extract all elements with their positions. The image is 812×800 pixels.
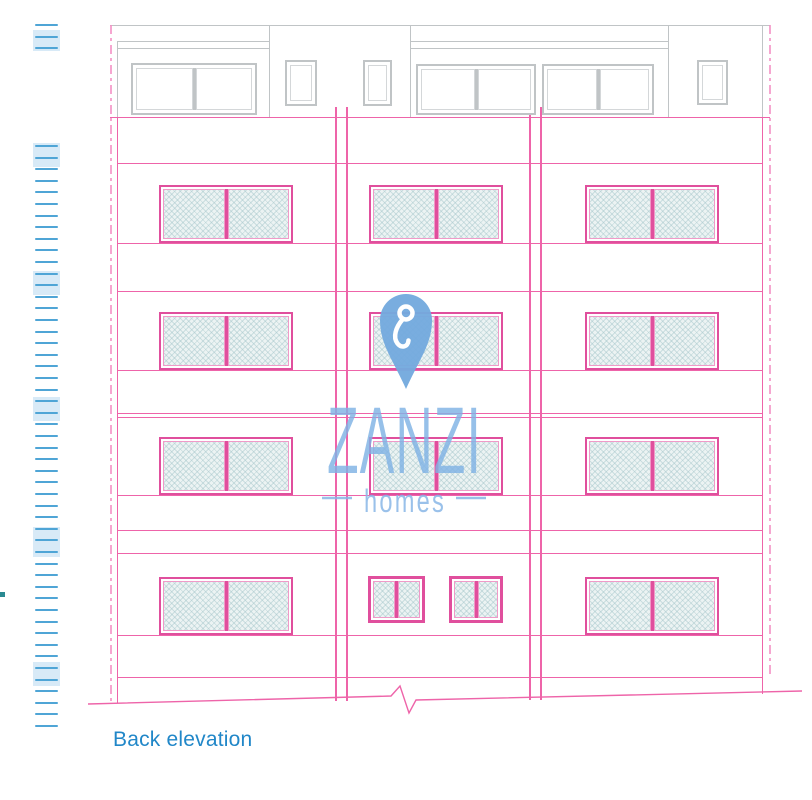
drawing-overlay: ZANZI homes [0, 0, 812, 800]
dimension-tick [35, 284, 58, 286]
balcony-window [585, 577, 719, 635]
dimension-tick [35, 713, 58, 715]
dimension-tick [35, 574, 58, 576]
balcony-window [585, 312, 719, 370]
roof-window [131, 63, 257, 115]
dimension-tick [35, 342, 58, 344]
roof-wall-line [762, 25, 763, 117]
dimension-tick [35, 481, 58, 483]
window-pane [398, 581, 420, 618]
dimension-tick [35, 24, 58, 26]
floor-line [117, 553, 762, 554]
dimension-tick [35, 157, 58, 159]
roof-window [542, 64, 654, 115]
dimension-tick [35, 551, 58, 553]
dimension-tick [35, 493, 58, 495]
dimension-tick [35, 609, 58, 611]
window-pane [654, 581, 716, 631]
window-pane [547, 69, 597, 110]
roof-wall-line [410, 25, 411, 117]
dimension-tick [35, 655, 58, 657]
dimension-tick [35, 621, 58, 623]
window-pane [136, 68, 193, 110]
window-pane [163, 189, 225, 239]
window-pane [163, 316, 225, 366]
dimension-tick [35, 389, 58, 391]
dimension-tick [35, 145, 58, 147]
floor-line [110, 117, 770, 118]
window-pane [438, 441, 500, 491]
window-pane [589, 441, 651, 491]
dimension-tick [35, 586, 58, 588]
dimension-tick [35, 168, 58, 170]
dimension-tick [35, 203, 58, 205]
balcony-window [159, 437, 293, 495]
dimension-tick [35, 516, 58, 518]
balcony-window [159, 312, 293, 370]
floor-line [117, 370, 762, 371]
dimension-tick [35, 435, 58, 437]
window-pane [654, 441, 716, 491]
dimension-tick [35, 261, 58, 263]
dimension-tick [35, 319, 58, 321]
balcony-window [369, 312, 503, 370]
roof-wall-line [117, 41, 118, 117]
floor-line [117, 291, 762, 292]
dimension-tick [35, 679, 58, 681]
dimension-tick [35, 597, 58, 599]
window-pane [373, 189, 435, 239]
window-pane [163, 581, 225, 631]
dimension-tick [35, 528, 58, 530]
roof-line [410, 41, 668, 42]
dimension-tick [35, 458, 58, 460]
window-pane [438, 316, 500, 366]
dimension-tick [35, 644, 58, 646]
window-pane [589, 189, 651, 239]
roof-line [117, 48, 269, 49]
roof-line [110, 25, 770, 26]
floor-line [117, 413, 762, 414]
dimension-tick [35, 412, 58, 414]
window-pane [228, 189, 290, 239]
dimension-tick [35, 354, 58, 356]
roof-window [285, 60, 317, 106]
roof-window [363, 60, 392, 106]
floor-line [117, 635, 762, 636]
floor-line [117, 243, 762, 244]
small-window [368, 576, 425, 623]
dimension-tick [35, 296, 58, 298]
window-pane [589, 581, 651, 631]
window-pane [163, 441, 225, 491]
facade-wall-line [117, 117, 118, 703]
floor-line [117, 495, 762, 496]
dimension-tick [35, 632, 58, 634]
dimension-tick [35, 47, 58, 49]
balcony-window [159, 577, 293, 635]
centerline [769, 25, 771, 677]
window-pane [438, 189, 500, 239]
roof-wall-line [269, 25, 270, 117]
window-pane [702, 65, 723, 100]
window-pane [373, 316, 435, 366]
dimension-tick [35, 365, 58, 367]
window-pane [654, 189, 716, 239]
balcony-window [369, 185, 503, 243]
window-pane [600, 69, 650, 110]
dimension-tick [35, 447, 58, 449]
pilaster [335, 107, 348, 701]
roof-wall-line [668, 25, 669, 117]
dimension-tick [35, 505, 58, 507]
window-pane [290, 65, 312, 101]
balcony-window [159, 185, 293, 243]
dimension-tick [35, 690, 58, 692]
dimension-fill [33, 662, 60, 686]
roof-line [410, 48, 668, 49]
dimension-tick [35, 273, 58, 275]
balcony-window [585, 437, 719, 495]
window-pane [478, 581, 499, 618]
drawing-caption: Back elevation [113, 728, 252, 752]
window-pane [228, 316, 290, 366]
dimension-tick [35, 725, 58, 727]
window-pane [373, 441, 435, 491]
dimension-tick [35, 377, 58, 379]
dimension-tick [35, 423, 58, 425]
dimension-tick [35, 331, 58, 333]
window-pane [228, 441, 290, 491]
dimension-tick [35, 238, 58, 240]
window-pane [589, 316, 651, 366]
dimension-tick [35, 563, 58, 565]
window-pane [228, 581, 290, 631]
floor-line [117, 530, 762, 531]
small-window [449, 576, 503, 623]
elevation-drawing-canvas: ZANZI homes Back elevation [0, 0, 812, 800]
dimension-tick [35, 470, 58, 472]
window-pane [421, 69, 475, 110]
ground-break-line [88, 686, 802, 713]
dimension-fill [33, 271, 60, 295]
floor-line [117, 417, 762, 418]
dimension-tick [35, 215, 58, 217]
dimension-tick [35, 307, 58, 309]
roof-line [117, 41, 269, 42]
balcony-window [585, 185, 719, 243]
edge-marker-dot [0, 592, 5, 597]
window-pane [368, 65, 387, 101]
dimension-tick [35, 191, 58, 193]
dimension-tick [35, 400, 58, 402]
floor-line [117, 163, 762, 164]
dimension-tick [35, 249, 58, 251]
facade-wall-line [762, 117, 763, 694]
window-pane [478, 69, 532, 110]
dimension-tick [35, 36, 58, 38]
dimension-tick [35, 180, 58, 182]
window-pane [196, 68, 253, 110]
centerline [110, 25, 112, 704]
floor-line [117, 677, 762, 678]
pilaster [529, 107, 542, 700]
roof-window [416, 64, 536, 115]
balcony-window [369, 437, 503, 495]
roof-window [697, 60, 728, 105]
window-pane [654, 316, 716, 366]
window-pane [454, 581, 475, 618]
dimension-tick [35, 667, 58, 669]
dimension-tick [35, 702, 58, 704]
dimension-tick [35, 226, 58, 228]
window-pane [373, 581, 395, 618]
